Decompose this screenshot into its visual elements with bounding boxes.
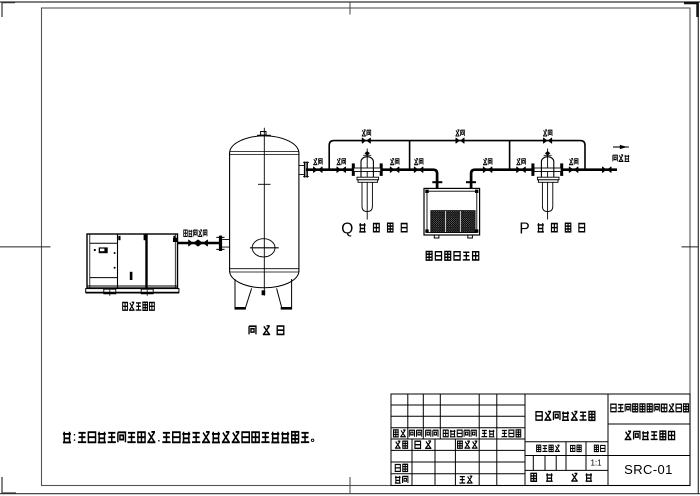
svg-text:P: P bbox=[519, 220, 529, 237]
svg-text:SRC-01: SRC-01 bbox=[624, 462, 673, 477]
svg-text:1:1: 1:1 bbox=[590, 459, 602, 468]
svg-text:Q: Q bbox=[341, 220, 353, 237]
